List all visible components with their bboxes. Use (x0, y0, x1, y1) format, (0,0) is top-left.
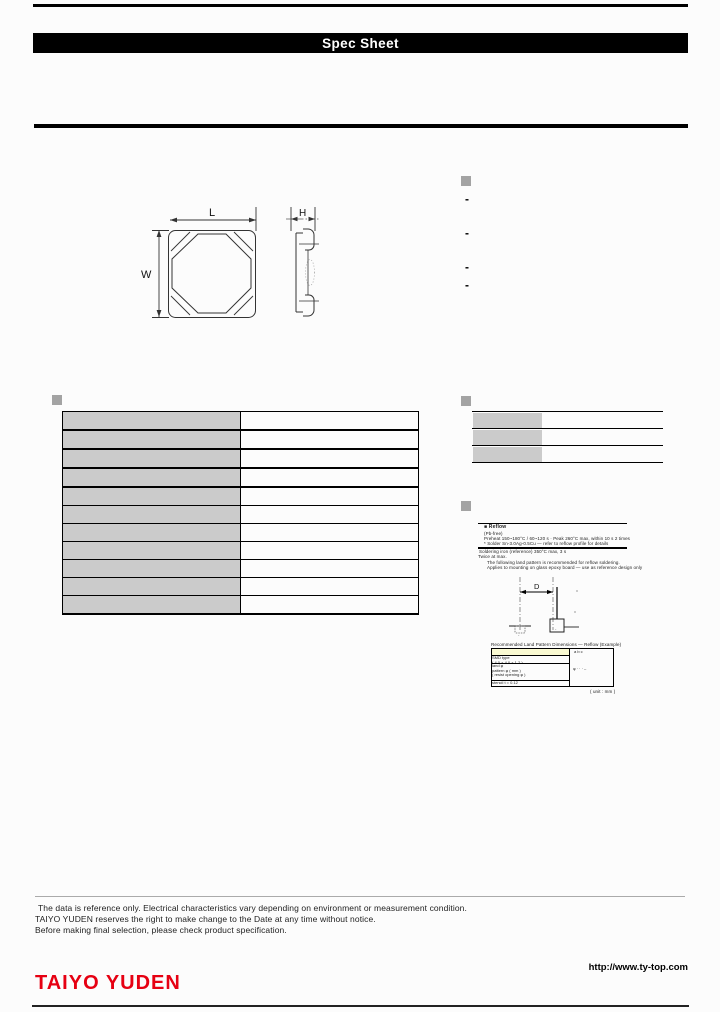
spec-table-row (63, 596, 419, 615)
spec-table-row (63, 412, 419, 431)
spec-label-cell (63, 524, 241, 542)
features-section-bullet-icon (461, 176, 471, 186)
w-dimension-label: W (141, 269, 152, 281)
land-pattern-row: SMD type ( 4.0 × 4.0 × 1.2 ) (492, 656, 569, 664)
mini-table-row (472, 428, 663, 445)
l-arrow-left (170, 218, 177, 223)
spec-table (62, 411, 419, 615)
mini-label-cell (473, 413, 542, 428)
land-pattern-cell: ( resist opening φ ) (492, 673, 569, 678)
spec-label-cell (63, 578, 241, 596)
spec-value-cell (241, 524, 419, 542)
top-view-octagon (172, 234, 251, 313)
w-arrow-bottom (157, 310, 162, 317)
spec-table-row (63, 524, 419, 542)
feature-item-dash: - (465, 262, 469, 272)
part-number-section-bullet-icon (461, 396, 471, 406)
part-number-table (472, 411, 663, 463)
d-arrow-left (520, 590, 526, 594)
package-dimension-drawing: L W H (140, 200, 360, 325)
stray-mark-dot (576, 590, 577, 591)
disclaimer-line: The data is reference only. Electrical c… (35, 903, 695, 914)
land-pattern-table-left-column: b SMD type ( 4.0 × 4.0 × 1.2 ) land φ pa… (492, 649, 570, 686)
footer-rule (32, 1005, 689, 1007)
feature-item-dash: - (465, 194, 469, 204)
soldering-section-bullet-icon (461, 501, 471, 511)
unit-note: ( unit : mm ) (590, 689, 615, 694)
spec-table-row (63, 506, 419, 524)
pad-right-mark: - (555, 626, 557, 631)
soldering-sub-line: Twice at max. (478, 554, 507, 559)
top-view-outline (169, 231, 256, 318)
side-view-dotted-detail (306, 260, 315, 286)
land-pattern-drawing: D - - (495, 575, 605, 637)
spec-section-bullet-icon (52, 395, 62, 405)
spec-value-cell (241, 542, 419, 560)
spec-table-row (63, 560, 419, 578)
spec-sheet-page: Spec Sheet L W H (0, 0, 720, 1012)
corner-chamfer-lines (171, 232, 253, 315)
company-url-link[interactable]: http://www.ty-top.com (460, 962, 688, 973)
spec-value-cell (241, 449, 419, 468)
spec-table-row (63, 430, 419, 449)
soldering-note-box: ■ Reflow (Pb-free) Preheat 150~180°C / 6… (478, 523, 627, 549)
disclaimer-line: Before making final selection, please ch… (35, 925, 695, 936)
land-pattern-table: b SMD type ( 4.0 × 4.0 × 1.2 ) land φ pa… (491, 648, 614, 687)
land-pattern-cell: stencil t = 0.12 (492, 681, 569, 686)
disclaimer-divider (35, 896, 685, 897)
spec-value-cell (241, 487, 419, 506)
land-pattern-row: land φ pattern φ ( mm ) ( resist opening… (492, 664, 569, 681)
spec-label-cell (63, 560, 241, 578)
h-arrow-left (291, 217, 298, 221)
top-rule (33, 4, 688, 7)
mini-table-bottom-border (472, 462, 663, 463)
spec-label-cell (63, 596, 241, 615)
disclaimer: The data is reference only. Electrical c… (35, 903, 695, 935)
side-view-outline (296, 229, 314, 316)
mini-label-cell (473, 430, 542, 445)
page-title: Spec Sheet (322, 36, 399, 51)
spec-label-cell (63, 449, 241, 468)
l-dimension-label: L (209, 207, 215, 219)
spec-value-cell (241, 468, 419, 487)
mini-table-row (472, 411, 663, 428)
d-dimension-label: D (534, 582, 540, 591)
h-dimension-label: H (299, 208, 306, 219)
stray-mark-dot (574, 611, 575, 612)
spec-value-cell (241, 412, 419, 431)
land-pattern-column-marks: a b c (574, 650, 583, 655)
land-pattern-row: stencil t = 0.12 (492, 681, 569, 686)
spec-label-cell (63, 412, 241, 431)
feature-item-dash: - (465, 280, 469, 290)
spec-value-cell (241, 506, 419, 524)
mini-label-cell (473, 447, 542, 462)
spec-table-row (63, 449, 419, 468)
soldering-sub-line: Applies to mounting on glass epoxy board… (487, 565, 642, 570)
land-pattern-table-right-column: a b c φ · · · – (570, 649, 613, 686)
d-arrow-right (547, 590, 553, 594)
land-pattern-table-title: Recommended Land Pattern Dimensions — Re… (491, 642, 621, 647)
feature-item-dash: - (465, 228, 469, 238)
land-pattern-value-marks: φ · · · – (573, 667, 586, 672)
spec-label-cell (63, 542, 241, 560)
page-title-bar: Spec Sheet (33, 33, 688, 53)
spec-label-cell (63, 468, 241, 487)
spec-table-row (63, 542, 419, 560)
spec-label-cell (63, 487, 241, 506)
pad-right-outline (550, 619, 564, 632)
note-box-line: * Solder Sn-3.0Ag-0.5Cu — refer to reflo… (484, 541, 625, 546)
taiyo-yuden-logo: TAIYO YUDEN (35, 972, 181, 995)
l-arrow-right (249, 218, 256, 223)
spec-value-cell (241, 430, 419, 449)
land-pattern-row-highlighted: b (492, 649, 569, 656)
note-box-line: Preheat 150~180°C / 60~120 s · Peak 260°… (484, 536, 625, 541)
mini-table-row (472, 445, 663, 462)
spec-value-cell (241, 596, 419, 615)
section-divider-rule (34, 124, 688, 128)
h-arrow-right (309, 217, 316, 221)
spec-label-cell (63, 430, 241, 449)
spec-label-cell (63, 506, 241, 524)
spec-table-row (63, 487, 419, 506)
spec-value-cell (241, 560, 419, 578)
spec-table-row (63, 578, 419, 596)
w-arrow-top (157, 230, 162, 237)
spec-value-cell (241, 578, 419, 596)
spec-table-row (63, 468, 419, 487)
disclaimer-line: TAIYO YUDEN reserves the right to make c… (35, 914, 695, 925)
